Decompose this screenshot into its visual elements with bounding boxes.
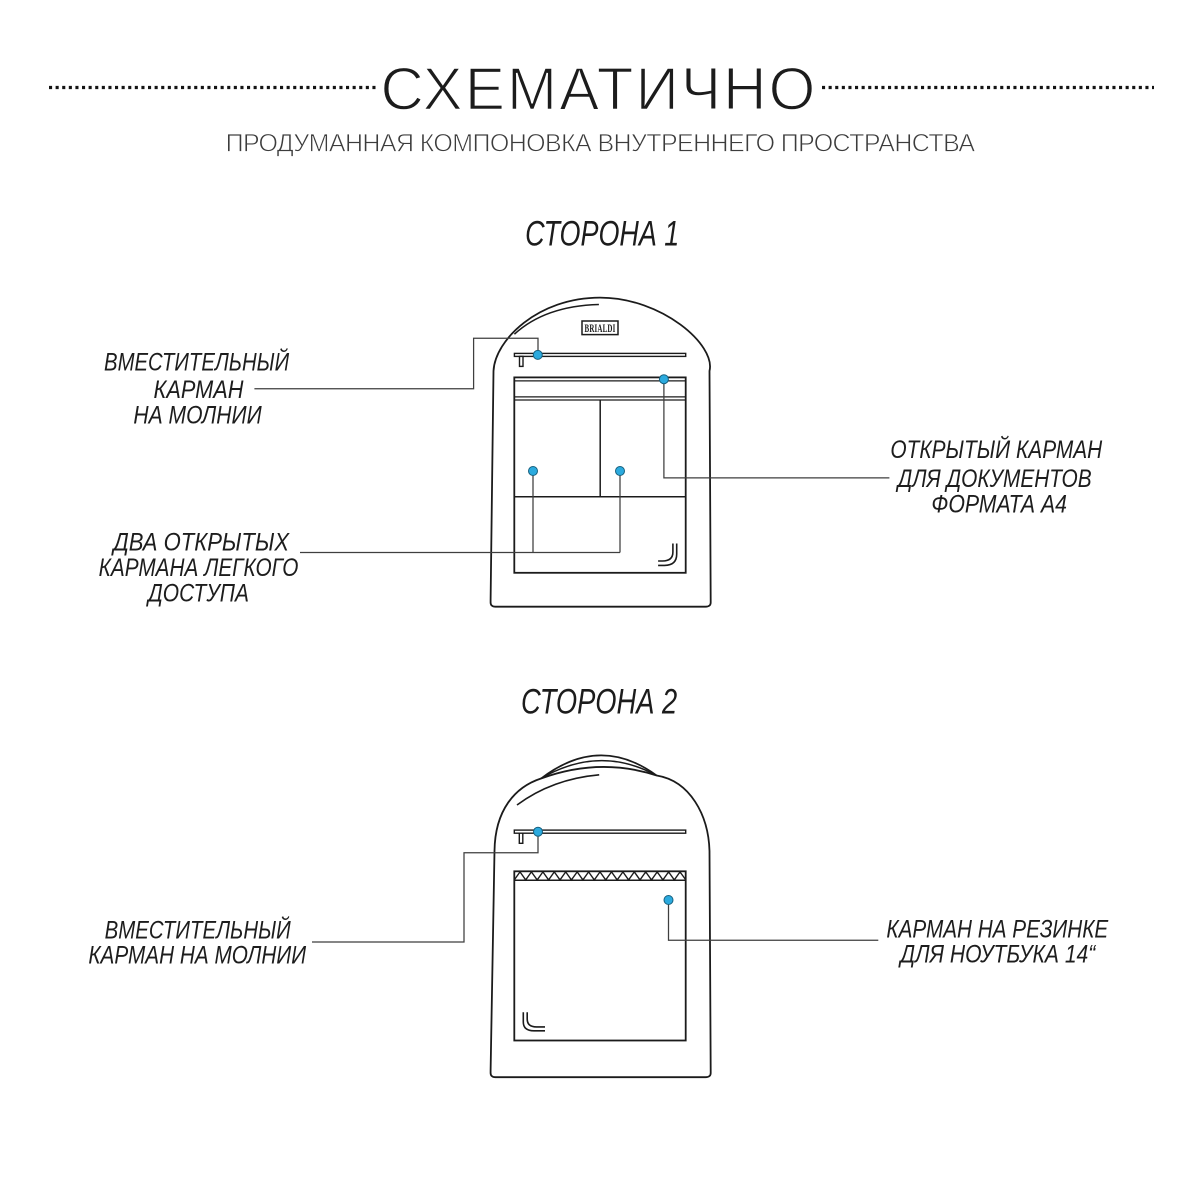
svg-text:ДВА ОТКРЫТЫХ: ДВА ОТКРЫТЫХ (110, 528, 290, 556)
svg-text:НА МОЛНИИ: НА МОЛНИИ (133, 401, 262, 429)
svg-text:ВМЕСТИТЕЛЬНЫЙ: ВМЕСТИТЕЛЬНЫЙ (105, 915, 292, 943)
svg-text:СТОРОНА 2: СТОРОНА 2 (521, 682, 677, 721)
svg-text:ФОРМАТА А4: ФОРМАТА А4 (931, 490, 1067, 518)
svg-text:ДОСТУПА: ДОСТУПА (145, 579, 249, 607)
svg-text:ДЛЯ НОУТБУКА 14“: ДЛЯ НОУТБУКА 14“ (898, 940, 1097, 968)
svg-text:ВМЕСТИТЕЛЬНЫЙ: ВМЕСТИТЕЛЬНЫЙ (104, 347, 290, 376)
svg-text:ОТКРЫТЫЙ КАРМАН: ОТКРЫТЫЙ КАРМАН (890, 434, 1102, 463)
svg-text:КАРМАНА ЛЕГКОГО: КАРМАНА ЛЕГКОГО (99, 553, 299, 581)
svg-text:ДЛЯ ДОКУМЕНТОВ: ДЛЯ ДОКУМЕНТОВ (895, 464, 1092, 492)
svg-text:КАРМАН НА МОЛНИИ: КАРМАН НА МОЛНИИ (88, 941, 306, 969)
svg-text:СХЕМАТИЧНО: СХЕМАТИЧНО (380, 56, 817, 123)
svg-text:КАРМАН: КАРМАН (154, 375, 244, 403)
svg-text:ПРОДУМАННАЯ КОМПОНОВКА ВНУТРЕН: ПРОДУМАННАЯ КОМПОНОВКА ВНУТРЕННЕГО ПРОСТ… (226, 130, 976, 158)
svg-text:КАРМАН НА РЕЗИНКЕ: КАРМАН НА РЕЗИНКЕ (886, 915, 1108, 943)
svg-text:BRIALDI: BRIALDI (585, 322, 616, 335)
svg-text:СТОРОНА 1: СТОРОНА 1 (525, 214, 679, 253)
